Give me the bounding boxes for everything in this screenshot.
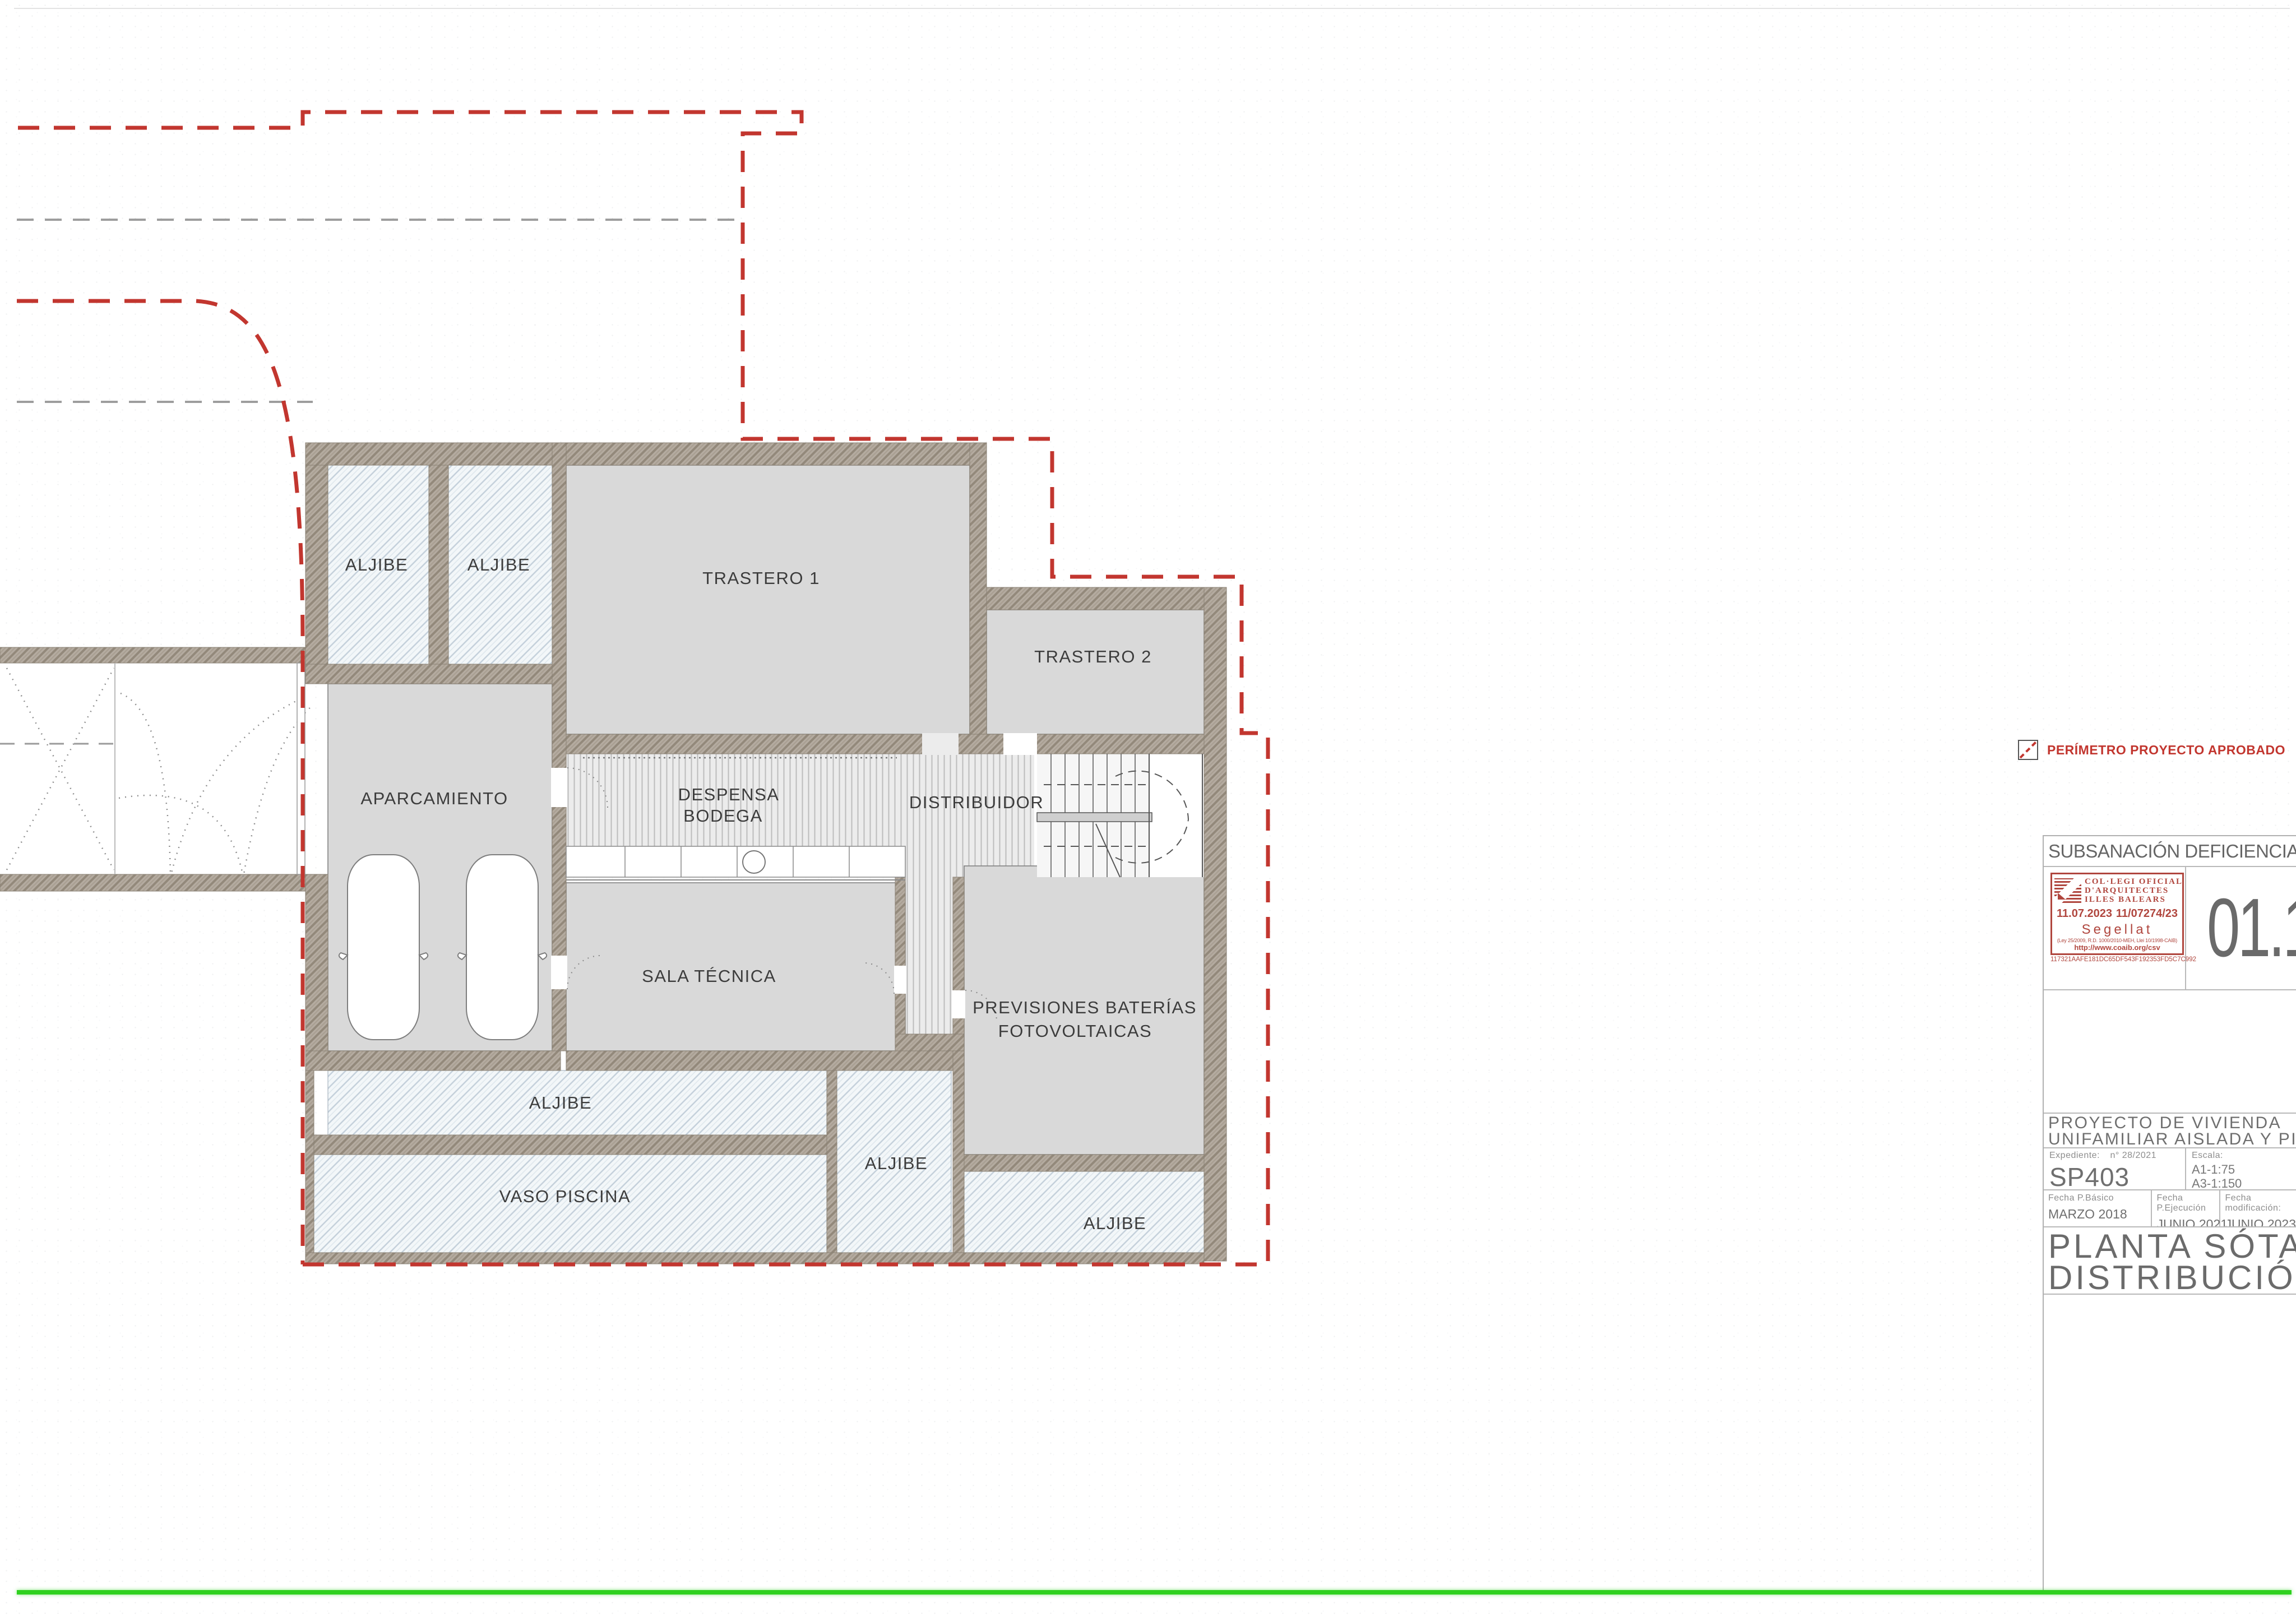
label-distribuidor: DISTRIBUIDOR bbox=[909, 793, 1044, 812]
stamp-org-line2: D'ARQUITECTES bbox=[2085, 886, 2183, 895]
label-trastero-2: TRASTERO 2 bbox=[1034, 647, 1152, 666]
room-trastero-2-area bbox=[987, 610, 1204, 734]
driveway-corridor bbox=[0, 647, 312, 891]
stamp-law: (Ley 25/2009, R.D. 1000/2010-MEH, Llei 1… bbox=[2054, 938, 2180, 943]
fecha-ejecucion-value: JUNIO 2021 bbox=[2156, 1217, 2219, 1227]
stair-landing-area bbox=[1149, 754, 1204, 877]
title-block-tail bbox=[2044, 1295, 2296, 1586]
perimeter-legend-label: PERÍMETRO PROYECTO APROBADO bbox=[2047, 743, 2285, 758]
title-block: SUBSANACIÓN DEFICIENCIAS DE MTO COL·LEGI… bbox=[2043, 835, 2296, 1593]
stamp-org-line3: ILLES BALEARS bbox=[2085, 895, 2183, 904]
perimeter-legend-swatch-icon bbox=[2018, 740, 2038, 760]
fecha-modificacion-value: JUNIO 2023 bbox=[2225, 1217, 2296, 1227]
site-dashed-lines bbox=[17, 220, 743, 402]
project-title-line2: UNIFAMILIAR AISLADA Y PISCINA bbox=[2048, 1131, 2296, 1147]
label-aljibe-bottom-right: ALJIBE bbox=[1084, 1213, 1146, 1233]
label-despensa-line1: DESPENSA bbox=[678, 785, 780, 804]
label-aljibe-top-1: ALJIBE bbox=[345, 555, 408, 574]
car-icon bbox=[466, 855, 538, 1040]
label-trastero-1: TRASTERO 1 bbox=[702, 568, 820, 588]
label-previsiones-line2: FOTOVOLTAICAS bbox=[998, 1021, 1152, 1041]
fecha-basico-label: Fecha P.Básico bbox=[2048, 1193, 2151, 1203]
escala-a1: A1-1:75 bbox=[2192, 1162, 2296, 1176]
green-baseline bbox=[17, 1590, 2292, 1595]
floor-plan: ALJIBE ALJIBE TRASTERO 1 TRASTERO 2 APAR… bbox=[0, 0, 2296, 1622]
expediente-value: n° 28/2021 bbox=[2110, 1151, 2156, 1160]
label-aparcamiento: APARCAMIENTO bbox=[360, 789, 508, 808]
stamp-org-line1: COL·LEGI OFICIAL bbox=[2085, 877, 2183, 886]
sheet-title-line2: DISTRIBUCIÓN bbox=[2048, 1262, 2296, 1294]
room-trastero-1-area bbox=[566, 465, 970, 734]
label-aljibe-strip: ALJIBE bbox=[529, 1093, 592, 1113]
title-block-spacer bbox=[2044, 990, 2296, 1114]
escala-label: Escala: bbox=[2192, 1151, 2296, 1161]
fecha-modificacion-label: Fecha modificación: bbox=[2225, 1193, 2296, 1213]
legend-perimetro: PERÍMETRO PROYECTO APROBADO bbox=[2018, 740, 2285, 760]
stamp-sealed: Segellat bbox=[2054, 922, 2180, 938]
label-sala-tecnica: SALA TÉCNICA bbox=[642, 966, 776, 986]
sheet-number: 01.1 bbox=[2207, 880, 2296, 976]
room-aljibe-bottom-right-area bbox=[964, 1171, 1204, 1253]
college-stamp: COL·LEGI OFICIAL D'ARQUITECTES ILLES BAL… bbox=[2044, 867, 2186, 989]
project-code: SP403 bbox=[2049, 1162, 2185, 1190]
stamp-hash: 117321AAFE181DC65DF543F192353FD5C7C992 bbox=[2050, 956, 2191, 963]
expediente-label: Expediente: bbox=[2049, 1151, 2100, 1160]
revision-title: SUBSANACIÓN DEFICIENCIAS DE MTO bbox=[2044, 836, 2296, 867]
coaib-logo-icon bbox=[2054, 878, 2081, 903]
stamp-url: http://www.coaib.org/csv bbox=[2054, 943, 2180, 952]
car-icon bbox=[348, 855, 419, 1040]
distribuidor-south-corridor bbox=[905, 877, 953, 1034]
escala-a3: A3-1:150 bbox=[2192, 1176, 2296, 1190]
label-aljibe-mid: ALJIBE bbox=[865, 1153, 928, 1173]
room-distribuidor-area bbox=[905, 754, 1034, 877]
label-previsiones-line1: PREVISIONES BATERÍAS bbox=[973, 998, 1197, 1017]
label-aljibe-top-2: ALJIBE bbox=[467, 555, 530, 574]
sheet-title-line1: PLANTA SÓTANO bbox=[2048, 1231, 2296, 1262]
stamp-date: 11.07.2023 bbox=[2057, 907, 2112, 920]
project-title-line1: PROYECTO DE VIVIENDA bbox=[2048, 1115, 2296, 1131]
label-vaso-piscina: VASO PISCINA bbox=[499, 1187, 631, 1206]
fecha-basico-value: MARZO 2018 bbox=[2048, 1207, 2151, 1222]
label-despensa-line2: BODEGA bbox=[683, 806, 763, 826]
stamp-file-number: 11/07274/23 bbox=[2116, 907, 2178, 920]
fecha-ejecucion-label: Fecha P.Ejecución bbox=[2156, 1193, 2219, 1213]
